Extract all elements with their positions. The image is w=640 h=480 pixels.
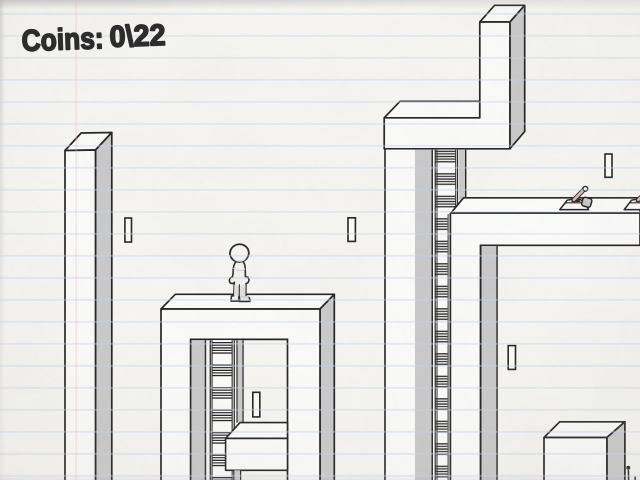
svg-text:0\22: 0\22 xyxy=(109,19,166,54)
svg-text:Coins:: Coins: xyxy=(21,22,104,58)
